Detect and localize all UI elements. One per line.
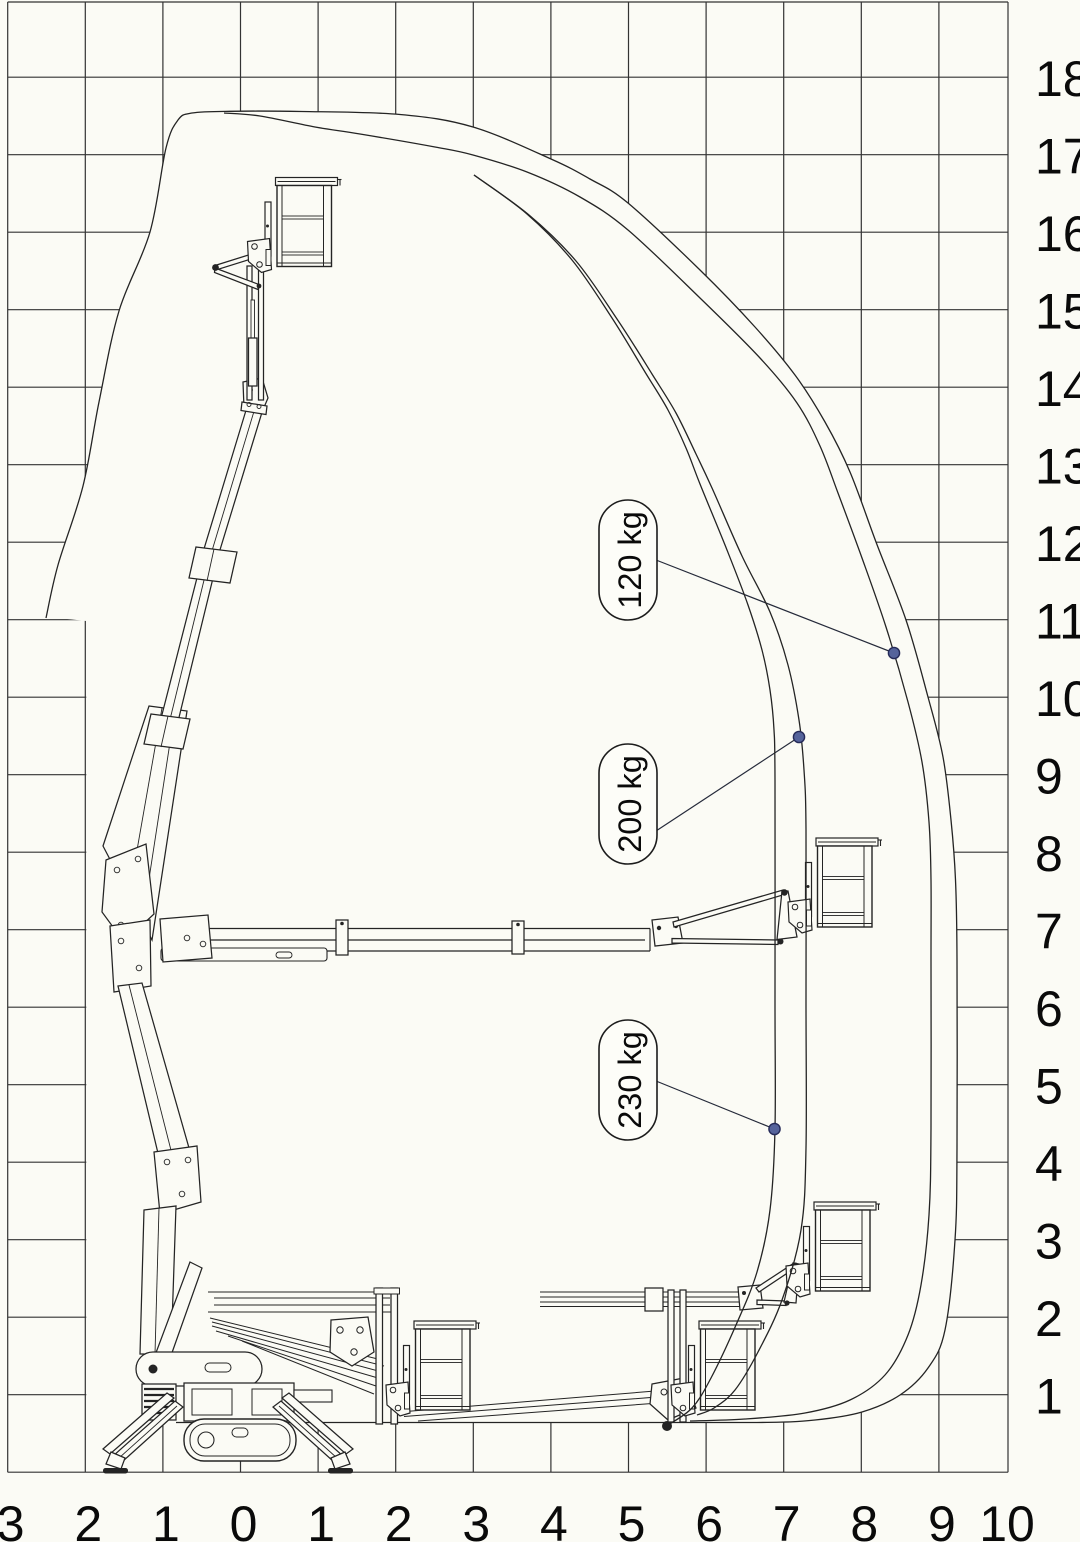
svg-text:6: 6 <box>1035 981 1063 1037</box>
svg-text:4: 4 <box>540 1496 568 1542</box>
svg-text:6: 6 <box>695 1496 723 1542</box>
svg-text:9: 9 <box>1035 749 1063 805</box>
svg-text:0: 0 <box>230 1496 258 1542</box>
svg-text:2: 2 <box>1035 1291 1063 1347</box>
svg-text:5: 5 <box>1035 1059 1063 1115</box>
svg-text:8: 8 <box>1035 826 1063 882</box>
svg-text:1: 1 <box>307 1496 335 1542</box>
svg-text:3: 3 <box>462 1496 490 1542</box>
svg-text:1: 1 <box>1035 1369 1063 1425</box>
svg-text:2: 2 <box>74 1496 102 1542</box>
svg-text:10: 10 <box>1035 671 1080 727</box>
svg-text:13: 13 <box>1035 439 1080 495</box>
svg-text:8: 8 <box>850 1496 878 1542</box>
svg-text:4: 4 <box>1035 1136 1063 1192</box>
svg-text:3: 3 <box>1035 1214 1063 1270</box>
svg-text:2: 2 <box>385 1496 413 1542</box>
svg-text:7: 7 <box>1035 904 1063 960</box>
svg-text:200 kg: 200 kg <box>612 755 648 853</box>
svg-text:17: 17 <box>1035 129 1080 185</box>
svg-text:10: 10 <box>979 1496 1035 1542</box>
svg-text:16: 16 <box>1035 206 1080 262</box>
svg-text:120 kg: 120 kg <box>612 511 648 609</box>
svg-text:9: 9 <box>928 1496 956 1542</box>
svg-text:3: 3 <box>0 1496 25 1542</box>
svg-text:1: 1 <box>152 1496 180 1542</box>
svg-text:11: 11 <box>1035 594 1080 650</box>
svg-text:230 kg: 230 kg <box>612 1031 648 1129</box>
svg-text:12: 12 <box>1035 516 1080 572</box>
svg-text:18: 18 <box>1035 51 1080 107</box>
svg-text:5: 5 <box>618 1496 646 1542</box>
svg-text:15: 15 <box>1035 284 1080 340</box>
svg-text:7: 7 <box>773 1496 801 1542</box>
svg-text:14: 14 <box>1035 361 1080 417</box>
